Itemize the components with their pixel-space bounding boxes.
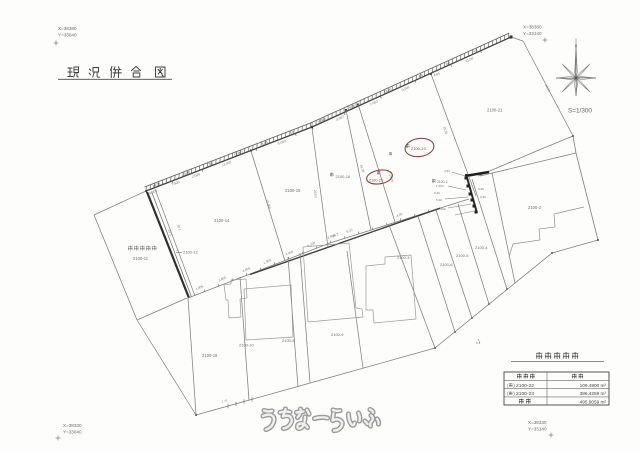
svg-text:Y=33140: Y=33140 xyxy=(528,426,547,431)
svg-text:2100-8: 2100-8 xyxy=(282,338,295,343)
svg-text:2100-19: 2100-19 xyxy=(202,353,218,358)
svg-text:4.94: 4.94 xyxy=(444,169,450,173)
svg-text:0.60: 0.60 xyxy=(434,191,440,195)
svg-text:5.00: 5.00 xyxy=(436,198,442,202)
svg-text:2100-10: 2100-10 xyxy=(239,343,254,348)
svg-text:Y=33040: Y=33040 xyxy=(63,429,82,434)
svg-text:S=1/300: S=1/300 xyxy=(568,108,592,115)
svg-text:29.03: 29.03 xyxy=(313,190,318,199)
svg-text:X=38380: X=38380 xyxy=(523,25,542,30)
svg-text:2100-14: 2100-14 xyxy=(214,218,230,223)
svg-text:2100-4: 2100-4 xyxy=(475,245,488,250)
svg-text:2100-5: 2100-5 xyxy=(456,253,469,258)
svg-text:Y=33040: Y=33040 xyxy=(58,32,77,37)
svg-text:3.99: 3.99 xyxy=(480,195,486,199)
svg-text:2100-21: 2100-21 xyxy=(487,108,503,113)
svg-text:Y=33140: Y=33140 xyxy=(523,31,542,36)
svg-text:2100-12: 2100-12 xyxy=(183,250,198,255)
svg-text:2100-22: 2100-22 xyxy=(369,179,383,183)
svg-text:2100-9: 2100-9 xyxy=(331,332,344,337)
svg-text:495.9059 m²: 495.9059 m² xyxy=(580,399,607,404)
svg-text:X=38380: X=38380 xyxy=(58,26,77,31)
svg-text:2100-23: 2100-23 xyxy=(411,146,426,151)
svg-text:2100-15: 2100-15 xyxy=(285,188,301,193)
svg-text:2100-11: 2100-11 xyxy=(133,256,149,261)
svg-text:X=38330: X=38330 xyxy=(63,423,82,428)
svg-text:2100-2: 2100-2 xyxy=(528,205,542,210)
svg-text:386.4259 m²: 386.4259 m² xyxy=(580,391,607,396)
svg-text:1.600: 1.600 xyxy=(436,184,444,188)
svg-text:—: — xyxy=(176,248,179,252)
svg-text:6.99: 6.99 xyxy=(478,187,484,191)
svg-text:X=38330: X=38330 xyxy=(528,420,547,425)
svg-text:2100-2: 2100-2 xyxy=(437,180,448,184)
svg-text:2100-6: 2100-6 xyxy=(440,262,453,267)
svg-text:2100-22: 2100-22 xyxy=(516,383,534,389)
svg-text:109.4800 m²: 109.4800 m² xyxy=(580,383,607,388)
svg-text:2100-16: 2100-16 xyxy=(336,174,351,179)
svg-text:2100-23: 2100-23 xyxy=(516,391,534,397)
svg-text:1.999: 1.999 xyxy=(438,207,446,211)
